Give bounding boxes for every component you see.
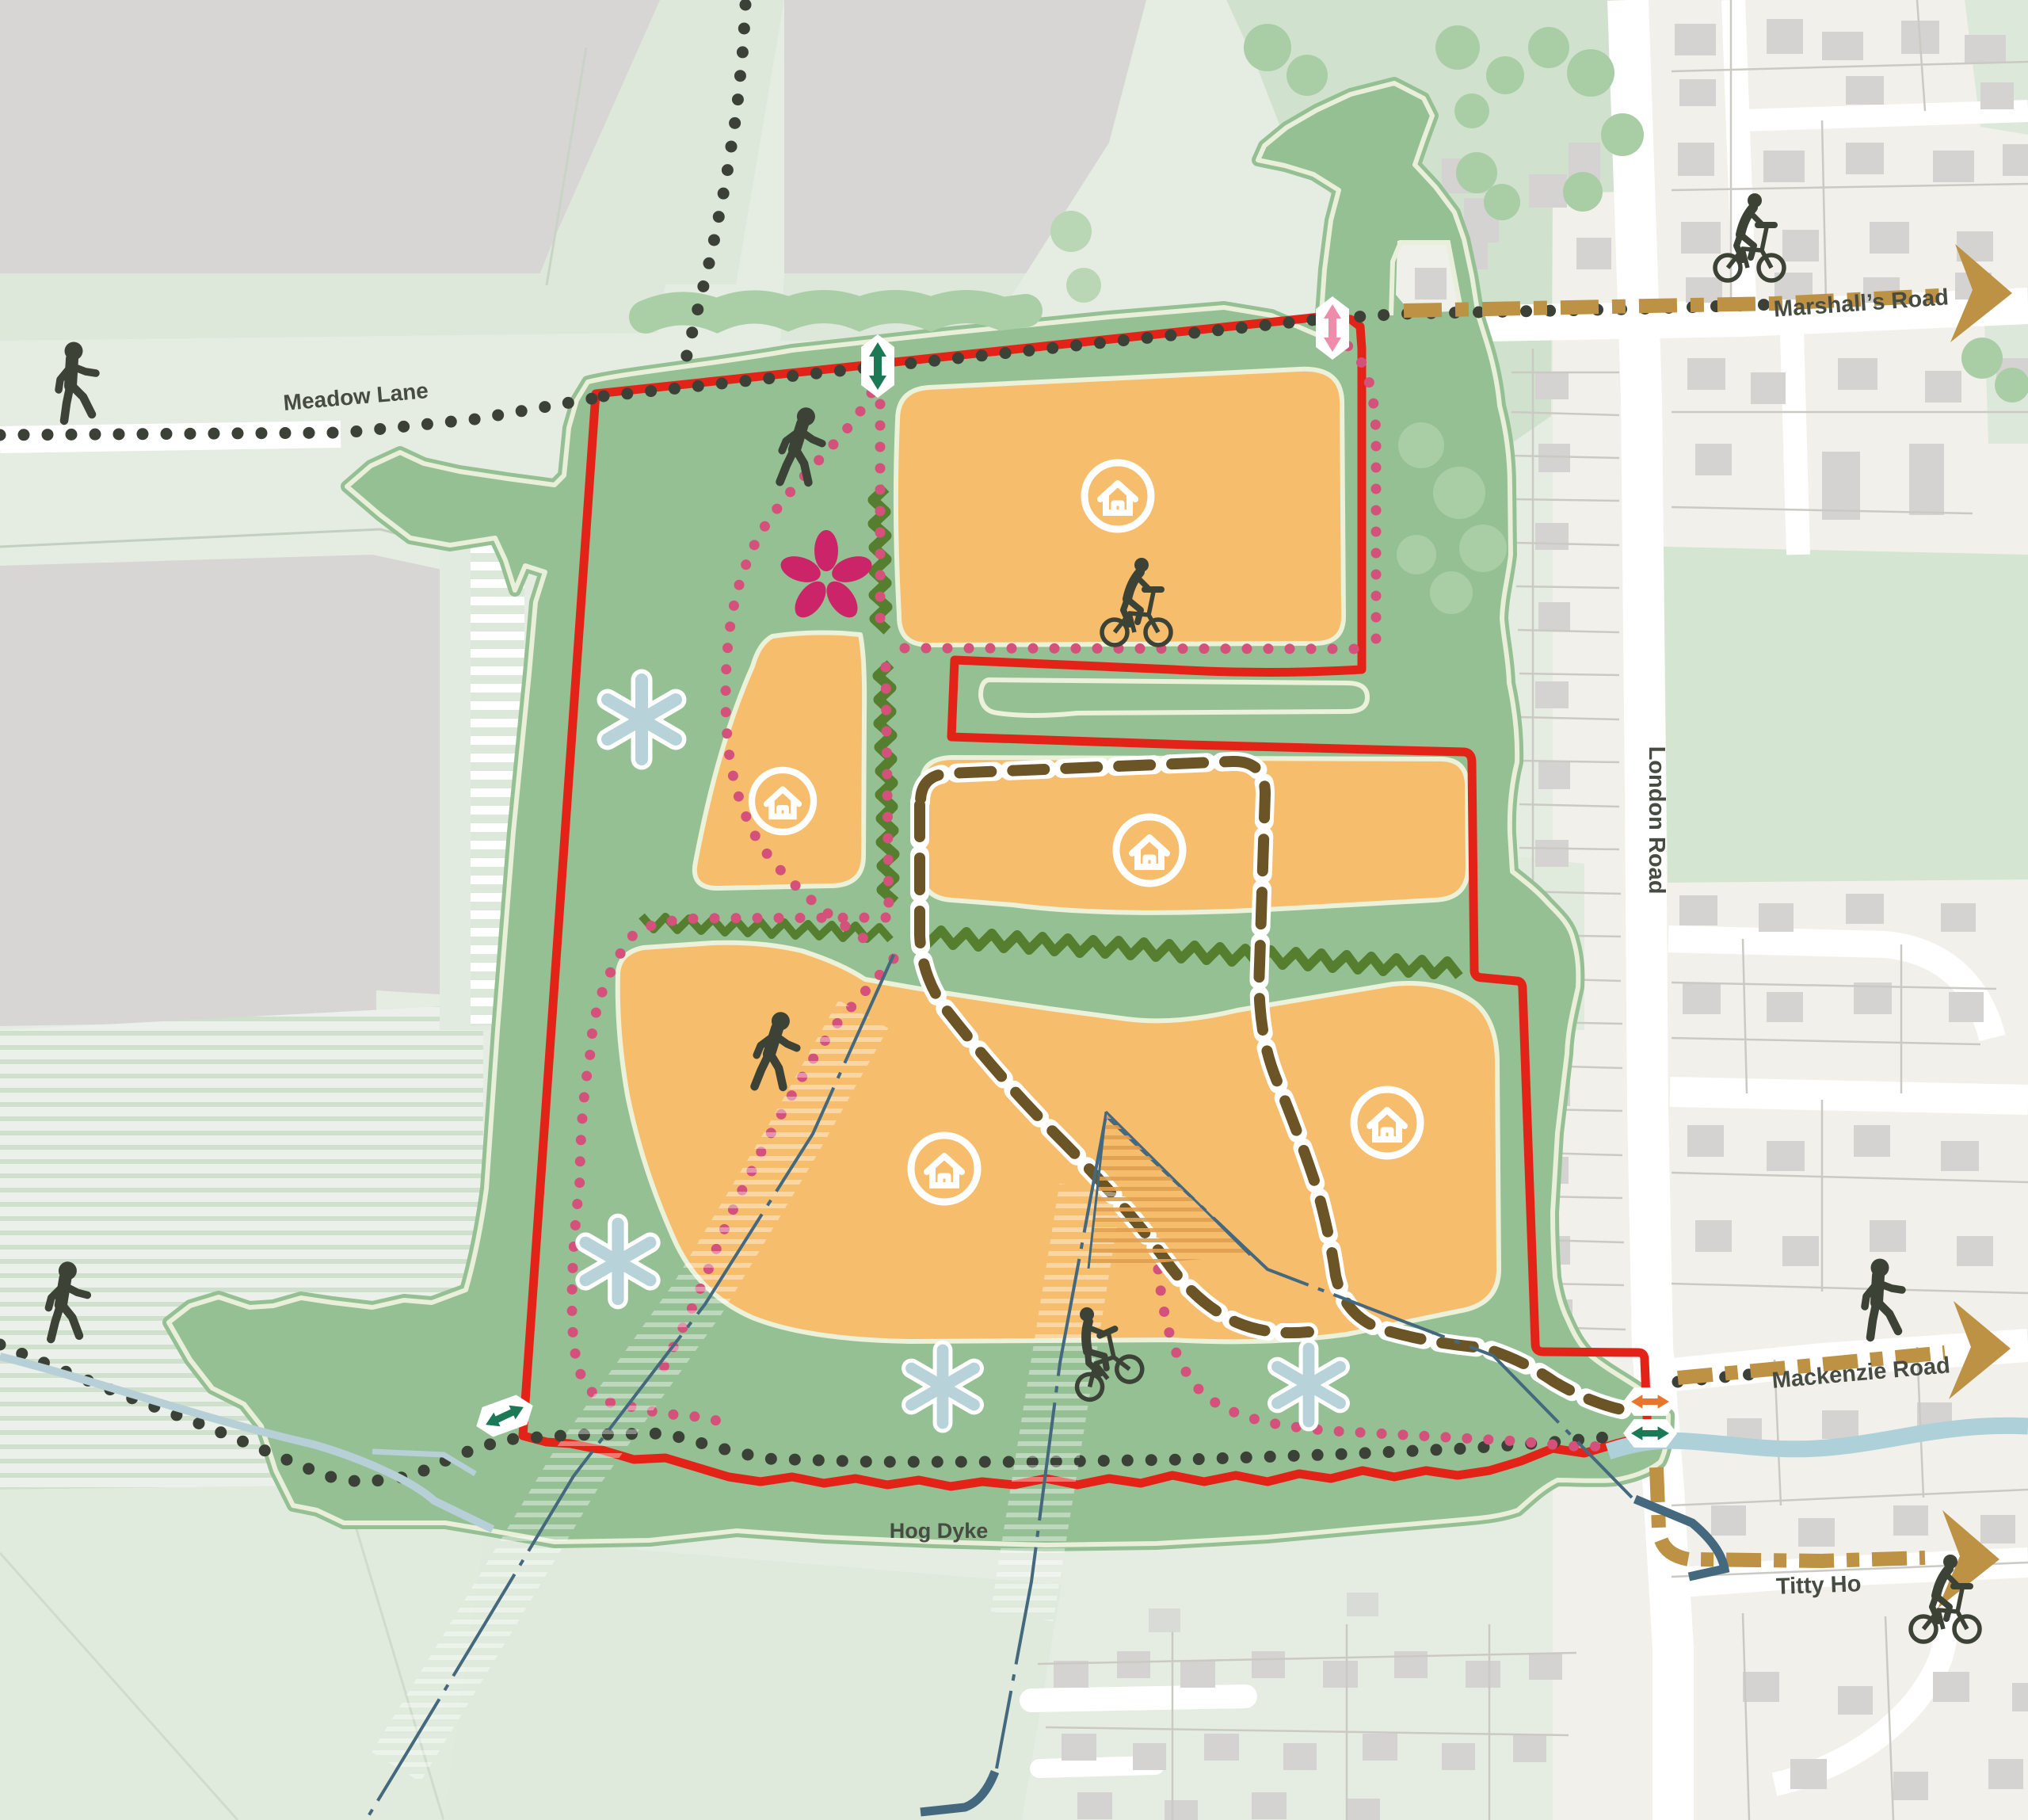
svg-text:Hog Dyke: Hog Dyke (890, 1519, 989, 1543)
svg-text:London Road: London Road (1644, 746, 1669, 895)
svg-text:Titty Ho: Titty Ho (1775, 1571, 1861, 1600)
